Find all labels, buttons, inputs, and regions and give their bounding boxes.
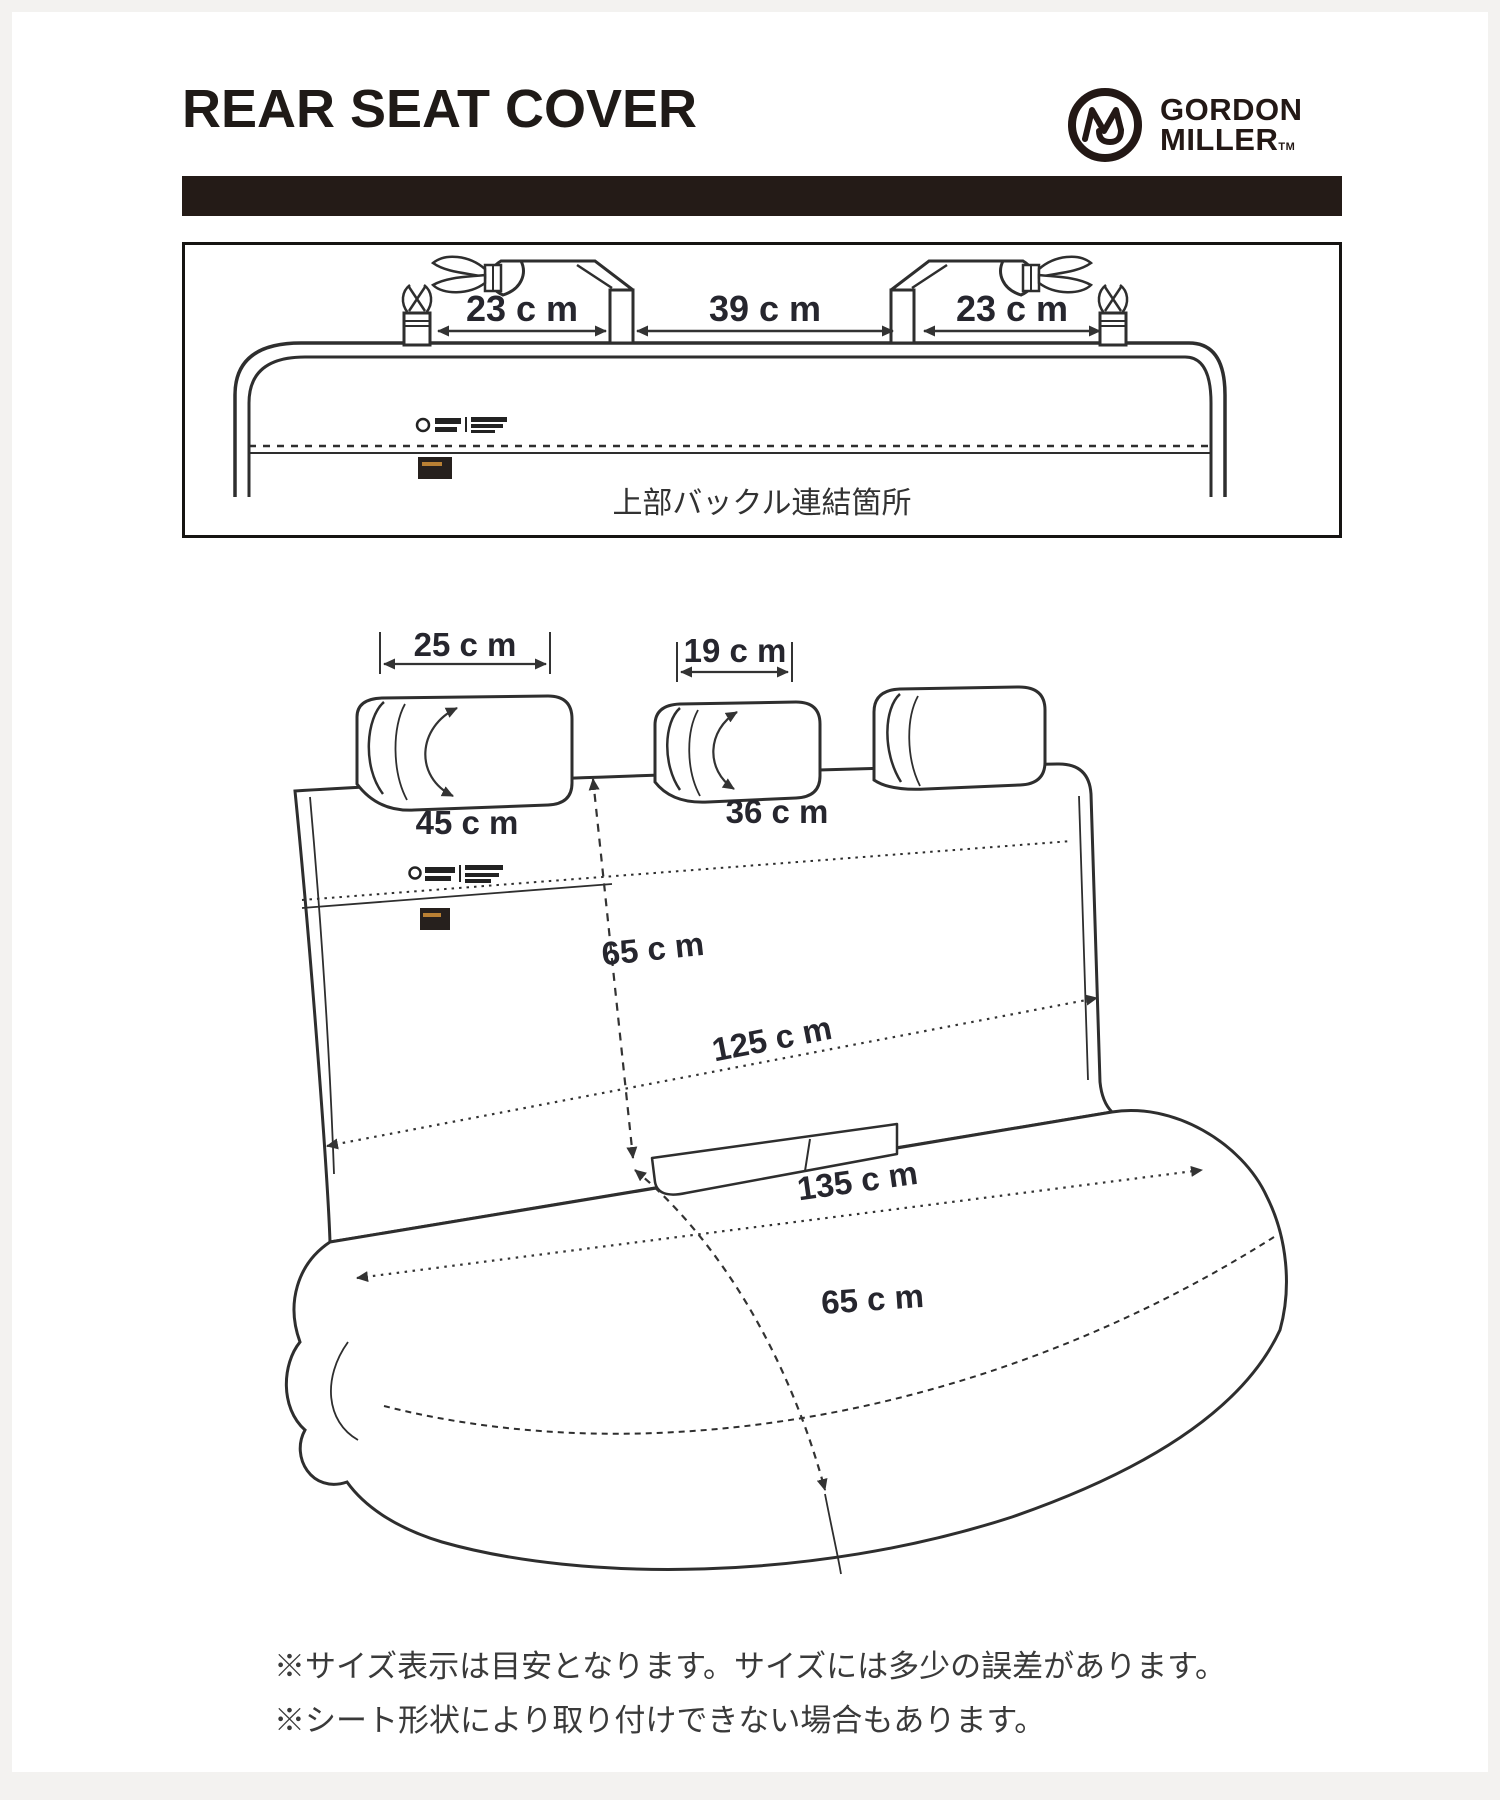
gordon-miller-mark-icon — [1064, 84, 1146, 166]
divider-bar — [182, 176, 1342, 216]
note-size-tolerance: ※サイズ表示は目安となります。サイズには多少の誤差があります。 — [274, 1640, 1226, 1694]
brand-line-top: GORDON — [1160, 95, 1303, 125]
product-size-sheet: REAR SEAT COVER GORDON MILLERTM — [0, 0, 1500, 1800]
dim-headrest-left-width: 25 c m — [414, 626, 517, 663]
note-fit-warning: ※シート形状により取り付けできない場合もあります。 — [274, 1694, 1226, 1748]
brand-logo: GORDON MILLERTM — [1064, 84, 1303, 166]
trademark-symbol: TM — [1278, 141, 1295, 153]
headrest-middle — [655, 702, 820, 802]
dim-buckle-mid: 39 c m — [709, 288, 821, 329]
dim-buckle-right: 23 c m — [956, 288, 1068, 329]
seat-cover-diagram: 65 c m 125 c m 135 c m 65 c m — [162, 542, 1362, 1642]
headrest-left — [357, 696, 572, 810]
dim-headrest-left-girth: 45 c m — [416, 804, 519, 841]
fabric-brand-print — [417, 417, 507, 479]
dim-headrest-mid-girth: 36 c m — [726, 793, 829, 830]
fabric-tag — [420, 908, 450, 930]
dim-buckle-left: 23 c m — [466, 288, 578, 329]
seat-top-outline — [235, 343, 1225, 497]
brand-wordmark: GORDON MILLERTM — [1160, 95, 1303, 156]
dim-headrest-mid-width: 19 c m — [684, 632, 787, 669]
page-title: REAR SEAT COVER — [182, 78, 697, 140]
dim-seat-depth: 65 c m — [820, 1277, 925, 1321]
right-side-clip — [1099, 285, 1127, 345]
fabric-tag — [418, 457, 452, 479]
top-diagram-caption: 上部バックル連結箇所 — [612, 487, 911, 520]
headrest-right — [874, 687, 1045, 789]
footer-notes: ※サイズ表示は目安となります。サイズには多少の誤差があります。 ※シート形状によ… — [274, 1640, 1226, 1748]
top-buckle-diagram: 23 c m 39 c m 23 c m 上部バックル連結箇所 — [185, 245, 1339, 535]
left-side-clip — [403, 285, 431, 345]
top-buckle-diagram-box: 23 c m 39 c m 23 c m 上部バックル連結箇所 — [182, 242, 1342, 538]
brand-line-bottom: MILLERTM — [1160, 125, 1303, 155]
